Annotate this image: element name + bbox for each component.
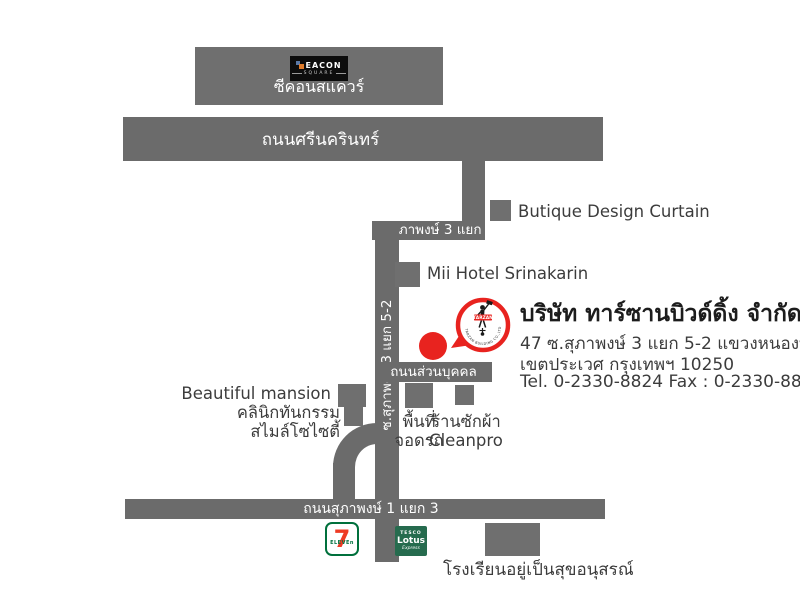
road-srinagarindra-label: ถนนศรีนครินทร์ [123,117,518,161]
seven-eleven-word: ELEVEn [327,540,357,546]
road-suphaphong-1-yaek-3-label: ถนนสุภาพงษ์ 1 แยก 3 [125,499,605,519]
mii-hotel-building [395,262,420,287]
laundry-label-line1: ร้านซักผ้า [429,413,503,432]
dental-clinic-label: คลินิกทันกรรม สไมล์โซไซตี้ [200,403,340,441]
company-name: บริษัท ทาร์ซานบิวด์ดิ้ง จำกัด [520,296,800,332]
seacon-logo-line-left [292,73,302,74]
road-srinagarindra: ถนนศรีนครินทร์ [123,117,603,161]
road-private: ถนนส่วนบุคคล [375,362,492,382]
beautiful-mansion-label: Beautiful mansion [150,384,331,403]
seven-eleven-digit: 7 [327,522,357,556]
laundry-label: ร้านซักผ้า Cleanpro [429,413,503,450]
company-location-marker [419,332,447,360]
seacon-square-thai-name: ซีคอนสแควร์ [195,75,443,100]
laundry-building [455,385,474,405]
butique-design-curtain-label: Butique Design Curtain [518,202,710,221]
dental-clinic-building [344,406,363,426]
parking-area-building [405,383,433,408]
seven-eleven-logo: 7 ELEVEn [325,522,359,556]
company-phone: Tel. 0-2330-8824 Fax : 0-2330-8825 [520,372,800,392]
butique-design-curtain-building [490,200,511,221]
map-canvas: { "colors": { "road": "#6b6b6b", "buildi… [0,0,800,600]
road-suphaphong-1-yaek-3: ถนนสุภาพงษ์ 1 แยก 3 [125,499,605,519]
tesco-lotus-logo: TESCO Lotus Express [395,526,427,556]
school-building [485,523,540,556]
express-word: Express [402,546,420,551]
lotus-word: Lotus [397,536,425,546]
dental-clinic-label-line1: คลินิกทันกรรม [200,403,340,422]
dental-clinic-label-line2: สไมล์โซไซตี้ [200,422,340,441]
road-private-label: ถนนส่วนบุคคล [375,362,492,382]
school-label: โรงเรียนอยู่เป็นสุขอนุสรณ์ [443,556,634,583]
tarzan-building-logo: TARZAN TARZAN BUILDING CO.,LTD. [450,294,516,360]
seacon-logo-line-right [336,73,346,74]
seacon-square-building: EACON SQUARE ซีคอนสแควร์ [195,47,443,105]
seacon-logo-text: EACON [305,61,341,70]
beautiful-mansion-building [338,384,366,407]
laundry-label-line2: Cleanpro [429,432,503,451]
logo-tarzan-text: TARZAN [473,315,493,321]
mii-hotel-label: Mii Hotel Srinakarin [427,264,588,283]
seacon-s-squares-icon [296,61,304,70]
